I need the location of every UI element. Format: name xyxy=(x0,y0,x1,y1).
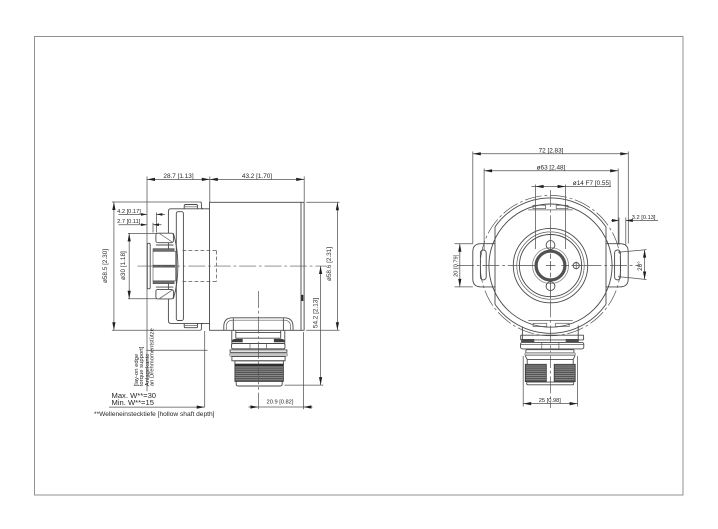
svg-text:20°: 20° xyxy=(636,261,644,271)
svg-text:Min. W**=15: Min. W**=15 xyxy=(112,398,154,407)
svg-text:54.2 [2.13]: 54.2 [2.13] xyxy=(312,298,319,328)
svg-text:3.2 [0.13]: 3.2 [0.13] xyxy=(632,215,656,221)
svg-text:2.7 [0.11]: 2.7 [0.11] xyxy=(117,219,141,225)
svg-text:an Drehmomentstütze: an Drehmomentstütze xyxy=(150,328,156,387)
svg-text:20 [0.79]: 20 [0.79] xyxy=(453,254,459,277)
svg-text:ø30 [1.18]: ø30 [1.18] xyxy=(120,251,127,280)
svg-text:43.2 [1.70]: 43.2 [1.70] xyxy=(242,173,272,180)
svg-text:4.2 [0.17]: 4.2 [0.17] xyxy=(117,209,141,215)
svg-text:20.9 [0.82]: 20.9 [0.82] xyxy=(267,399,294,405)
svg-text:ø63 [2.48]: ø63 [2.48] xyxy=(537,164,566,171)
svg-text:ø58.6 [2.31]: ø58.6 [2.31] xyxy=(326,247,333,281)
svg-text:28.7 [1.13]: 28.7 [1.13] xyxy=(163,173,193,180)
svg-text:25 [0.98]: 25 [0.98] xyxy=(539,398,562,404)
svg-text:**Welleneinstecktiefe [hollow: **Welleneinstecktiefe [hollow shaft dept… xyxy=(94,411,215,418)
svg-text:ø58.5 [2.30]: ø58.5 [2.30] xyxy=(102,249,109,283)
svg-text:ø14 F7 [0.55]: ø14 F7 [0.55] xyxy=(573,180,611,187)
svg-text:72 [2.83]: 72 [2.83] xyxy=(539,147,564,154)
